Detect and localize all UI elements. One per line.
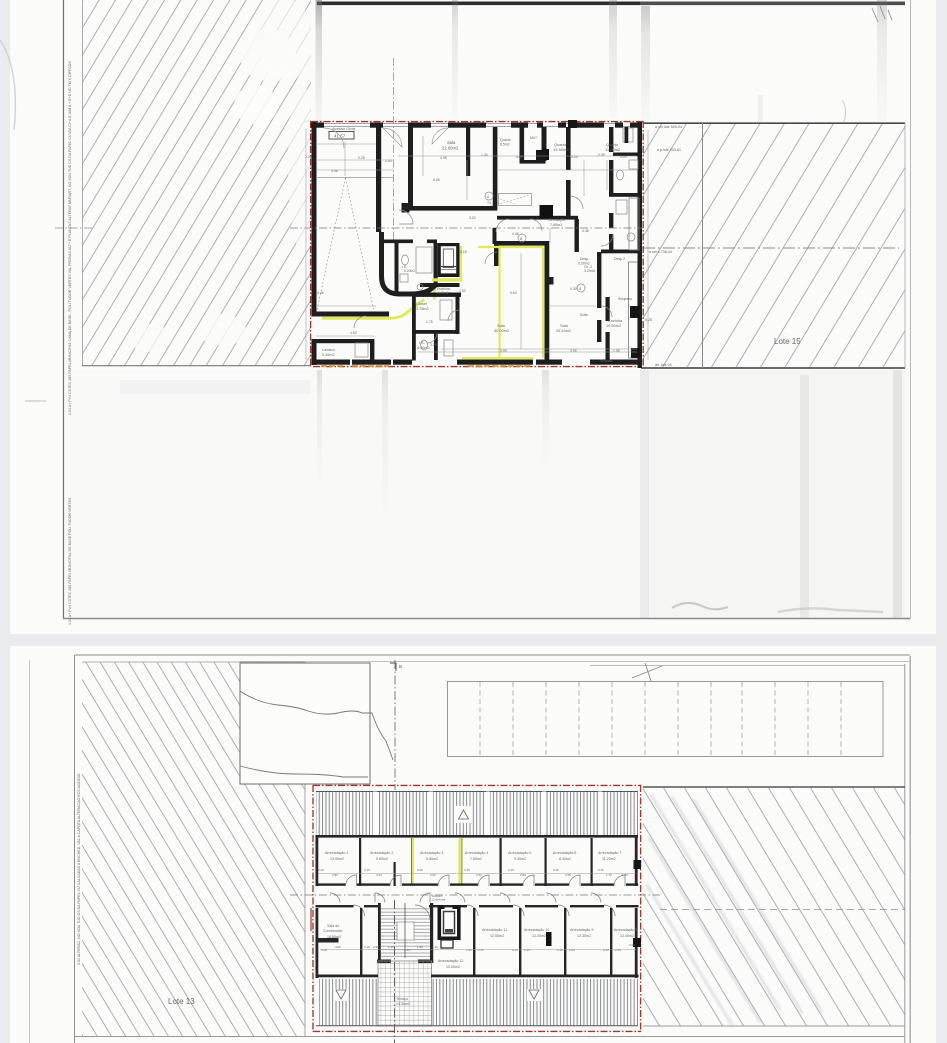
svg-text:6.05: 6.05	[433, 178, 440, 182]
svg-text:Suite: Suite	[580, 313, 588, 317]
svg-text:5.30: 5.30	[570, 287, 577, 291]
svg-text:5.18: 5.18	[460, 250, 467, 254]
svg-text:Closet: Closet	[416, 302, 428, 306]
svg-text:Arrecadação 11: Arrecadação 11	[482, 928, 507, 932]
svg-text:a um lote 555-04: a um lote 555-04	[655, 125, 682, 129]
svg-text:3.99: 3.99	[500, 349, 507, 353]
svg-text:Circulação: Circulação	[548, 218, 565, 222]
svg-text:2.30: 2.30	[615, 948, 621, 952]
svg-text:13.40m2: 13.40m2	[553, 147, 569, 152]
svg-text:11.20m2: 11.20m2	[602, 857, 616, 861]
svg-text:1.90: 1.90	[417, 945, 423, 949]
svg-text:7.80m2: 7.80m2	[550, 223, 562, 227]
svg-text:0.15: 0.15	[464, 868, 470, 872]
svg-text:4.00: 4.00	[335, 945, 341, 949]
svg-text:Roupeiro: Roupeiro	[618, 297, 632, 301]
svg-text:12.30m2: 12.30m2	[577, 934, 591, 938]
svg-text:3.20: 3.20	[469, 216, 476, 220]
svg-text:1.70m2: 1.70m2	[438, 291, 449, 295]
svg-text:3.25: 3.25	[430, 343, 437, 347]
svg-text:1.98: 1.98	[613, 349, 620, 353]
svg-text:8.5m2: 8.5m2	[500, 143, 510, 147]
svg-text:Terraço: Terraço	[396, 997, 408, 1001]
svg-text:4.45: 4.45	[440, 156, 447, 160]
svg-text:0.15: 0.15	[557, 948, 563, 952]
svg-text:4.46: 4.46	[512, 232, 519, 236]
svg-text:1.75: 1.75	[426, 320, 433, 324]
svg-text:4.46: 4.46	[582, 229, 589, 233]
svg-text:0.15: 0.15	[553, 868, 559, 872]
svg-text:9.80m2: 9.80m2	[376, 857, 388, 861]
svg-text:5.00: 5.00	[620, 155, 627, 159]
svg-text:Arrecadação 10: Arrecadação 10	[524, 928, 549, 932]
svg-text:0.25: 0.25	[404, 948, 410, 952]
svg-text:0.98: 0.98	[629, 943, 635, 947]
svg-text:3.20: 3.20	[571, 155, 578, 159]
svg-text:5.08: 5.08	[516, 155, 523, 159]
svg-text:4.50: 4.50	[350, 331, 357, 335]
svg-text:1.10: 1.10	[432, 945, 438, 949]
svg-text:12.40m2: 12.40m2	[620, 934, 634, 938]
svg-text:Arrecadação 2: Arrecadação 2	[370, 851, 393, 855]
svg-text:0.15: 0.15	[512, 948, 518, 952]
svg-text:Arrecadação 8: Arrecadação 8	[614, 928, 637, 932]
svg-text:10.60m2: 10.60m2	[606, 323, 621, 328]
svg-text:3.20m2: 3.20m2	[584, 269, 595, 273]
svg-text:30.00m2: 30.00m2	[494, 328, 509, 333]
svg-text:9.85m2: 9.85m2	[426, 857, 438, 861]
svg-text:alt. lote 04: alt. lote 04	[655, 363, 672, 367]
svg-text:Arrecadação 9: Arrecadação 9	[570, 928, 593, 932]
svg-text:Lote 15: Lote 15	[774, 337, 801, 346]
svg-text:1.20: 1.20	[388, 945, 394, 949]
svg-text:0.46: 0.46	[317, 291, 324, 295]
svg-text:5.25: 5.25	[645, 318, 652, 322]
svg-text:Acesso Obra: Acesso Obra	[332, 126, 356, 131]
svg-text:0.20: 0.20	[318, 868, 324, 872]
svg-text:1.04 A+ PV4 CSTEC 285 PAPEL MU: 1.04 A+ PV4 CSTEC 285 PAPEL MUNICIPAL CA…	[68, 61, 72, 415]
svg-text:2.35: 2.35	[598, 153, 605, 157]
svg-text:Condomínio: Condomínio	[323, 929, 342, 933]
svg-text:0.25: 0.25	[358, 156, 365, 160]
svg-text:7.65m2: 7.65m2	[470, 857, 482, 861]
svg-text:Arrecadação 3: Arrecadação 3	[420, 851, 443, 855]
svg-text:0.15: 0.15	[603, 948, 609, 952]
svg-text:T1: T1	[487, 201, 491, 205]
svg-text:a um s.738-04: a um s.738-04	[649, 250, 672, 254]
svg-text:Quarto: Quarto	[500, 138, 511, 142]
svg-text:I.S.: I.S.	[419, 341, 425, 345]
svg-text:Arrecadação 1: Arrecadação 1	[325, 851, 348, 855]
svg-text:MU?: MU?	[530, 136, 537, 140]
svg-text:Lavand.: Lavand.	[322, 348, 336, 352]
svg-text:3.96: 3.96	[570, 349, 577, 353]
svg-text:0.60: 0.60	[510, 291, 517, 295]
svg-text:1.40: 1.40	[481, 153, 488, 157]
svg-text:4.98: 4.98	[331, 169, 338, 173]
svg-text:Desp.: Desp.	[580, 257, 589, 261]
svg-text:5.20m2: 5.20m2	[404, 269, 415, 273]
svg-text:Arrecadação 5: Arrecadação 5	[508, 851, 531, 855]
svg-text:0.15: 0.15	[508, 868, 514, 872]
svg-text:12.20m2: 12.20m2	[532, 934, 546, 938]
svg-text:2.45: 2.45	[524, 948, 530, 952]
svg-text:2.90: 2.90	[373, 945, 379, 949]
svg-text:Lote 13: Lote 13	[168, 997, 195, 1006]
svg-text:Sala: Sala	[447, 140, 456, 145]
svg-text:18.85m2: 18.85m2	[327, 935, 341, 939]
svg-text:0.15: 0.15	[364, 868, 370, 872]
svg-text:Sala do: Sala do	[327, 924, 339, 928]
svg-text:Arrecadação 12: Arrecadação 12	[438, 959, 463, 963]
svg-text:Varanda: Varanda	[600, 359, 612, 363]
svg-text:Cobertura: Cobertura	[432, 898, 446, 902]
svg-text:a p.lote 233-61: a p.lote 233-61	[657, 148, 681, 152]
svg-text:9.30m2: 9.30m2	[514, 857, 526, 861]
svg-text:Arrecadação 4: Arrecadação 4	[465, 851, 488, 855]
svg-text:4.50m2: 4.50m2	[417, 346, 430, 350]
svg-text:13.90m2: 13.90m2	[330, 857, 344, 861]
svg-text:22.60m2: 22.60m2	[442, 146, 459, 151]
svg-text:12.55m2: 12.55m2	[490, 934, 504, 938]
svg-text:10.00m2: 10.00m2	[446, 965, 460, 969]
svg-text:14.30m2: 14.30m2	[396, 1002, 410, 1006]
svg-text:Desp.2: Desp.2	[614, 257, 625, 261]
svg-text:5.45m2: 5.45m2	[322, 353, 335, 357]
svg-text:2.45: 2.45	[569, 948, 575, 952]
svg-text:1.50: 1.50	[385, 159, 392, 163]
svg-text:1.04 ALTERAC. NO SOU TUD DS DA: 1.04 ALTERAC. NO SOU TUD DS DA PAPEL CU …	[77, 773, 81, 965]
svg-text:0.15: 0.15	[598, 868, 604, 872]
svg-text:0.15: 0.15	[466, 948, 472, 952]
svg-text:2.55: 2.55	[478, 948, 484, 952]
svg-text:11.20m2: 11.20m2	[605, 147, 621, 152]
svg-text:B: B	[399, 664, 402, 669]
svg-text:0.28: 0.28	[321, 948, 327, 952]
svg-text:8.30m2: 8.30m2	[559, 857, 571, 861]
svg-text:Arrecadação 7: Arrecadação 7	[598, 851, 621, 855]
svg-text:0.50: 0.50	[417, 868, 423, 872]
svg-text:25.40m2: 25.40m2	[556, 328, 571, 333]
svg-text:0.15: 0.15	[364, 945, 370, 949]
svg-text:3.75m2: 3.75m2	[416, 307, 429, 311]
svg-text:Arrecadação 6: Arrecadação 6	[553, 851, 576, 855]
svg-text:1.53: 1.53	[459, 289, 466, 293]
